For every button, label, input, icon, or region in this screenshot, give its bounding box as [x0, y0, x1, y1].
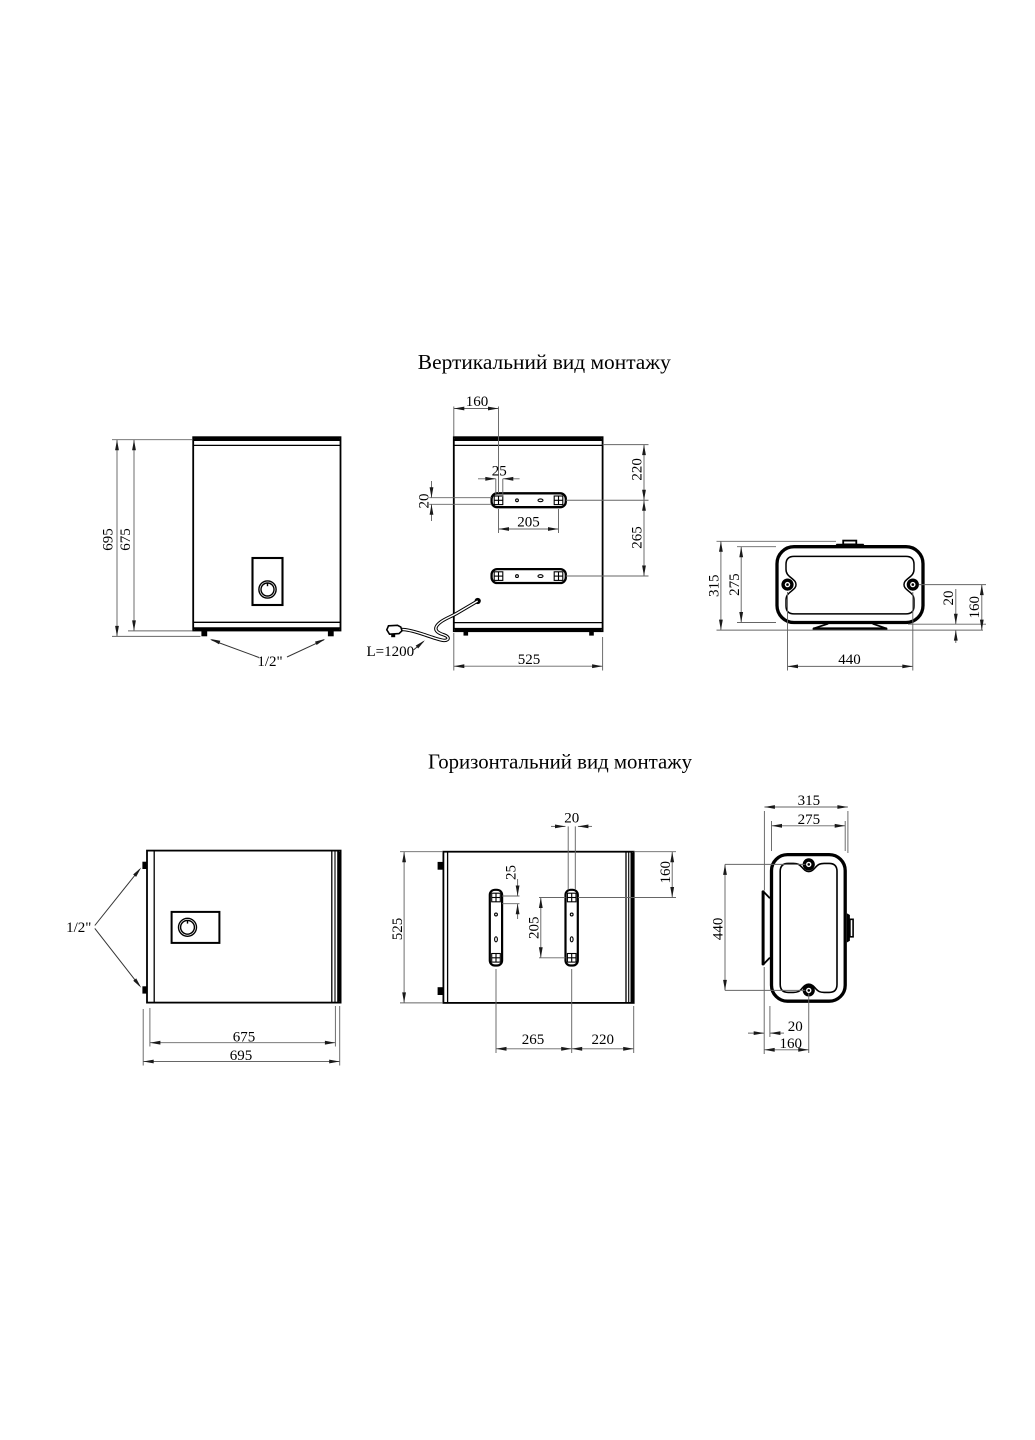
svg-text:220: 220	[630, 458, 646, 481]
svg-text:220: 220	[591, 1032, 614, 1048]
svg-text:20: 20	[788, 1019, 803, 1035]
svg-text:525: 525	[390, 918, 406, 941]
svg-text:1/2": 1/2"	[257, 654, 282, 670]
svg-text:265: 265	[630, 526, 646, 549]
svg-text:675: 675	[118, 528, 134, 551]
svg-text:675: 675	[233, 1029, 256, 1045]
svg-text:315: 315	[798, 793, 821, 809]
svg-text:Горизонтальний вид монтажу: Горизонтальний вид монтажу	[428, 750, 692, 774]
svg-text:160: 160	[779, 1036, 802, 1052]
svg-text:205: 205	[527, 916, 543, 939]
svg-text:160: 160	[967, 596, 983, 619]
svg-text:160: 160	[658, 861, 674, 884]
svg-text:Вертикальний вид монтажу: Вертикальний вид монтажу	[418, 350, 671, 374]
svg-text:L=1200: L=1200	[367, 644, 415, 660]
svg-text:315: 315	[707, 574, 723, 597]
svg-text:20: 20	[941, 591, 957, 606]
svg-text:20: 20	[564, 811, 579, 827]
svg-text:695: 695	[230, 1048, 253, 1064]
svg-text:160: 160	[466, 394, 489, 410]
svg-text:25: 25	[492, 463, 507, 479]
svg-text:275: 275	[727, 573, 743, 596]
svg-text:440: 440	[710, 918, 726, 941]
svg-text:205: 205	[517, 515, 540, 531]
svg-text:695: 695	[101, 528, 117, 551]
svg-text:20: 20	[417, 494, 433, 509]
svg-text:25: 25	[504, 865, 520, 880]
svg-text:525: 525	[518, 652, 541, 668]
svg-text:275: 275	[798, 812, 821, 828]
svg-text:440: 440	[838, 652, 861, 668]
svg-text:265: 265	[522, 1032, 545, 1048]
svg-text:1/2": 1/2"	[66, 920, 91, 936]
